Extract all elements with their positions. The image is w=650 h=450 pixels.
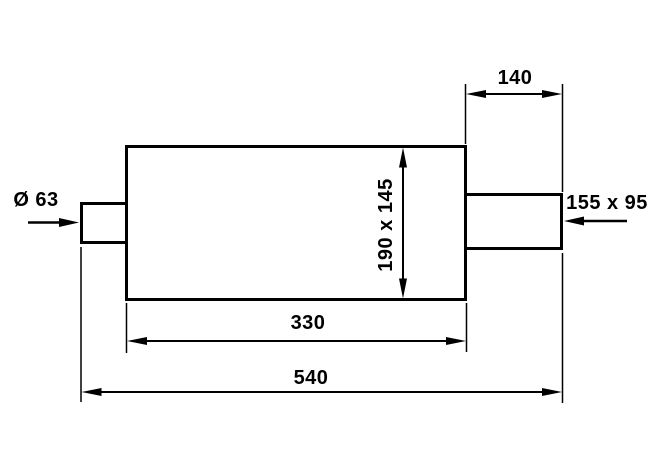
muffler-body-outline [127, 147, 466, 300]
outlet-pipe-outline [467, 195, 562, 249]
label-inlet-diameter: Ø 63 [13, 190, 58, 210]
label-body-length: 330 [291, 313, 326, 333]
inlet-flow-arrow [28, 218, 79, 227]
arrowhead [466, 90, 486, 98]
label-overall-length: 540 [294, 368, 329, 388]
arrowhead [446, 337, 466, 345]
inlet-pipe-outline [82, 204, 126, 243]
technical-drawing-canvas: Ø 63 140 155 x 95 190 x 145 330 540 [0, 0, 650, 450]
arrowhead [127, 337, 147, 345]
outlet-flow-arrow [564, 217, 627, 226]
arrowhead [82, 388, 102, 396]
dimension-140 [466, 84, 563, 192]
label-body-cross-section: 190 x 145 [376, 178, 396, 271]
label-outlet-size: 155 x 95 [566, 193, 648, 213]
arrowhead [542, 90, 562, 98]
arrowhead [542, 388, 562, 396]
label-outlet-section-length: 140 [498, 68, 533, 88]
